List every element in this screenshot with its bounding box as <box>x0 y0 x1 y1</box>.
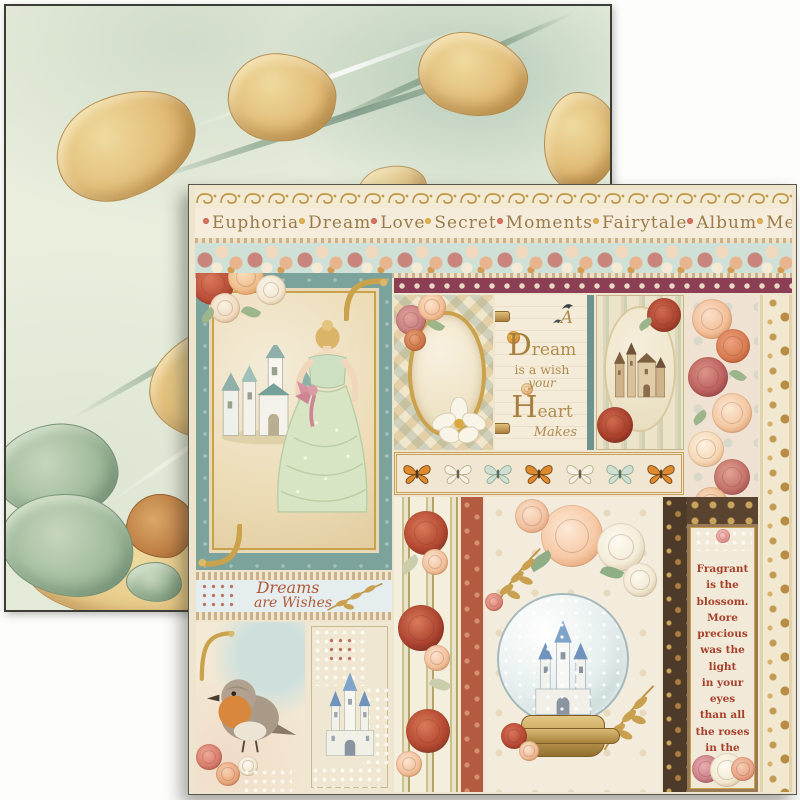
banner-word: Memories <box>757 213 792 233</box>
rose-icon <box>216 762 240 786</box>
banner-word: Euphoria <box>203 213 299 233</box>
butterfly-icon <box>442 462 474 486</box>
verse-line: More <box>692 610 753 626</box>
fairytale-collage-sheet: Euphoria Dream Love Secret Moments Fairy… <box>188 184 797 795</box>
peony-icon <box>515 499 549 533</box>
dark-gold-damask-strip <box>663 497 687 792</box>
rose-icon <box>485 593 503 611</box>
rose-icon <box>404 329 426 351</box>
leaf-icon <box>429 675 452 695</box>
verse-top-scroll-band <box>687 497 758 524</box>
butterfly-icon <box>523 462 555 486</box>
rose-icon <box>731 757 755 781</box>
princess-castle-panel <box>196 273 392 570</box>
magnolia-icon <box>428 397 490 449</box>
gold-damask-border <box>760 295 792 792</box>
storybook-quote-panel: A Dream is a wish your Heart Makes <box>495 295 594 450</box>
butterfly-icon <box>645 462 677 486</box>
snow-globe-icon <box>497 593 629 725</box>
gold-sprig-icon <box>324 578 386 614</box>
banner-word: Moments <box>497 213 593 233</box>
butterfly-icon <box>401 462 433 486</box>
white-castle-panel <box>307 622 392 792</box>
gold-corner-icon <box>344 277 388 321</box>
rose-icon <box>422 549 448 575</box>
butterfly-icon <box>482 462 514 486</box>
rose-icon <box>688 431 724 467</box>
gold-scroll-border <box>195 190 792 208</box>
dreams-label-band: Dreams are Wishes <box>196 572 392 620</box>
butterfly-icon <box>604 462 636 486</box>
banner-word: Dream <box>299 213 371 233</box>
rose-icon <box>519 741 539 761</box>
butterfly-border-strip <box>394 452 684 495</box>
scrollwork-icon <box>195 190 792 208</box>
banner-word: Secret <box>425 213 496 233</box>
verse-line: the roses <box>692 724 753 740</box>
rose-icon <box>256 275 286 305</box>
marble-green-blob <box>126 562 182 602</box>
quote-line: Dream <box>503 329 581 364</box>
banner-word: Love <box>371 213 425 233</box>
marble-gold-blob <box>222 47 341 149</box>
rose-icon <box>396 751 422 777</box>
rose-icon <box>716 329 750 363</box>
robin-bird-panel <box>196 622 305 792</box>
blossom-spray <box>242 768 292 792</box>
flower-accent-icon <box>716 529 730 543</box>
leaf-icon <box>691 409 709 426</box>
quote-line: Heart <box>503 391 581 426</box>
verse-line: is the <box>692 577 753 593</box>
product-photo: Euphoria Dream Love Secret Moments Fairy… <box>0 0 800 800</box>
maroon-diamond-strip <box>394 278 792 293</box>
marble-gold-blob <box>544 92 612 190</box>
princess-icon <box>270 315 372 527</box>
quote-line: is a wish <box>503 363 581 377</box>
verse-line: blossom. <box>692 594 753 610</box>
verse-text: Fragrant is the blossom. More precious w… <box>692 561 753 772</box>
sepia-castle-panel <box>596 295 684 450</box>
dreams-line: Dreams <box>244 580 332 596</box>
marble-rust-blob <box>126 494 194 558</box>
berry-spray <box>200 582 236 608</box>
dreams-label: Dreams are Wishes <box>244 580 332 610</box>
rose-icon <box>688 357 728 397</box>
banner-word: Fairytale <box>593 213 687 233</box>
rose-icon <box>597 407 633 443</box>
leaf-icon <box>399 554 422 574</box>
verse-line: precious <box>692 626 753 642</box>
quote-line: A <box>503 309 581 329</box>
castle-icon <box>317 650 383 778</box>
peony-icon <box>623 563 657 597</box>
rust-damask-strip <box>461 497 483 792</box>
dreams-line: are Wishes <box>244 596 332 610</box>
title-banner: Euphoria Dream Love Secret Moments Fairy… <box>195 208 792 238</box>
oval-mirror-panel <box>394 295 493 450</box>
rose-icon <box>210 293 240 323</box>
rose-icon <box>406 709 450 753</box>
quote-line: Makes <box>503 426 581 441</box>
banner-word: Album <box>687 213 757 233</box>
snow-globe-panel <box>485 497 661 792</box>
rose-icon <box>647 298 681 332</box>
butterfly-icon <box>564 462 596 486</box>
verse-line: in your eyes <box>692 675 753 708</box>
rose-garland-strip <box>195 243 792 273</box>
parchment-backdrop <box>212 291 376 550</box>
rose-icon <box>712 393 752 433</box>
snow-sparkles <box>499 595 627 723</box>
castle-icon <box>610 326 670 412</box>
verse-bookmark-panel: Fragrant is the blossom. More precious w… <box>687 524 758 792</box>
verse-line: was the light <box>692 642 753 675</box>
rose-icon <box>424 645 450 671</box>
marble-gold-blob <box>41 72 211 217</box>
rose-border-column <box>686 295 758 522</box>
quote-line: your <box>503 377 581 391</box>
verse-line: Fragrant <box>692 561 753 577</box>
rose-icon <box>404 511 448 555</box>
robin-icon <box>204 662 300 758</box>
verse-line: than all <box>692 707 753 723</box>
gold-corner-icon <box>198 524 242 568</box>
striped-rose-wallpaper <box>394 497 459 792</box>
dream-quote: A Dream is a wish your Heart Makes <box>503 309 581 441</box>
leaf-icon <box>729 367 747 384</box>
